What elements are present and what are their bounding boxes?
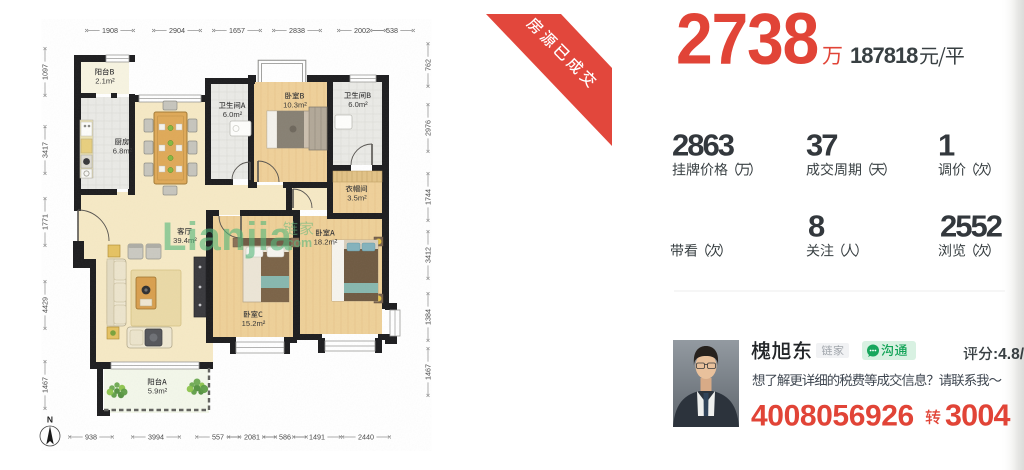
svg-text:N: N <box>47 415 53 425</box>
svg-text:1744: 1744 <box>424 189 433 205</box>
svg-text:1771: 1771 <box>41 214 50 230</box>
svg-text:3412: 3412 <box>424 247 433 263</box>
svg-text:37: 37 <box>806 128 837 163</box>
svg-text:2904: 2904 <box>169 26 185 35</box>
svg-text:1908: 1908 <box>102 26 118 35</box>
svg-text:3.5m²: 3.5m² <box>347 194 367 203</box>
svg-text:18.2m²: 18.2m² <box>314 238 338 247</box>
svg-text:3994: 3994 <box>148 433 164 442</box>
svg-text:2863: 2863 <box>672 128 735 163</box>
svg-text::4.8/5: :4.8/5 <box>993 346 1024 363</box>
svg-text:6.8m²: 6.8m² <box>113 147 133 156</box>
svg-text:2002: 2002 <box>354 26 370 35</box>
svg-text:538: 538 <box>386 26 398 35</box>
svg-text:6.0m²: 6.0m² <box>348 100 368 109</box>
svg-text:4429: 4429 <box>41 297 50 313</box>
svg-text:1467: 1467 <box>41 377 50 393</box>
svg-text:2552: 2552 <box>940 209 1002 244</box>
svg-text:10.3m²: 10.3m² <box>283 101 307 110</box>
svg-text:.com: .com <box>283 236 312 250</box>
svg-text:762: 762 <box>424 59 433 71</box>
svg-text:1657: 1657 <box>229 26 245 35</box>
svg-text:187818: 187818 <box>850 43 918 68</box>
svg-text:938: 938 <box>85 433 97 442</box>
svg-text:557: 557 <box>212 433 224 442</box>
svg-text:1: 1 <box>938 128 955 163</box>
svg-text:1491: 1491 <box>309 433 325 442</box>
svg-text:2081: 2081 <box>244 433 260 442</box>
svg-text:15.2m²: 15.2m² <box>242 319 266 328</box>
svg-text:2976: 2976 <box>424 120 433 136</box>
svg-text:6.0m²: 6.0m² <box>223 110 243 119</box>
svg-text:2838: 2838 <box>289 26 305 35</box>
svg-text:2.1m²: 2.1m² <box>95 77 115 86</box>
svg-text:586: 586 <box>279 433 291 442</box>
svg-text:3417: 3417 <box>41 142 50 158</box>
svg-text:3004: 3004 <box>945 399 1010 433</box>
svg-text:4008056926: 4008056926 <box>751 400 914 433</box>
svg-text:8: 8 <box>808 209 825 244</box>
svg-text:2440: 2440 <box>358 433 374 442</box>
svg-text:2738: 2738 <box>676 0 818 79</box>
svg-text:1097: 1097 <box>41 64 50 80</box>
svg-text:1384: 1384 <box>424 309 433 325</box>
svg-text:5.9m²: 5.9m² <box>148 387 168 396</box>
svg-text:1467: 1467 <box>424 364 433 380</box>
svg-text:Lianjia: Lianjia <box>162 215 292 259</box>
